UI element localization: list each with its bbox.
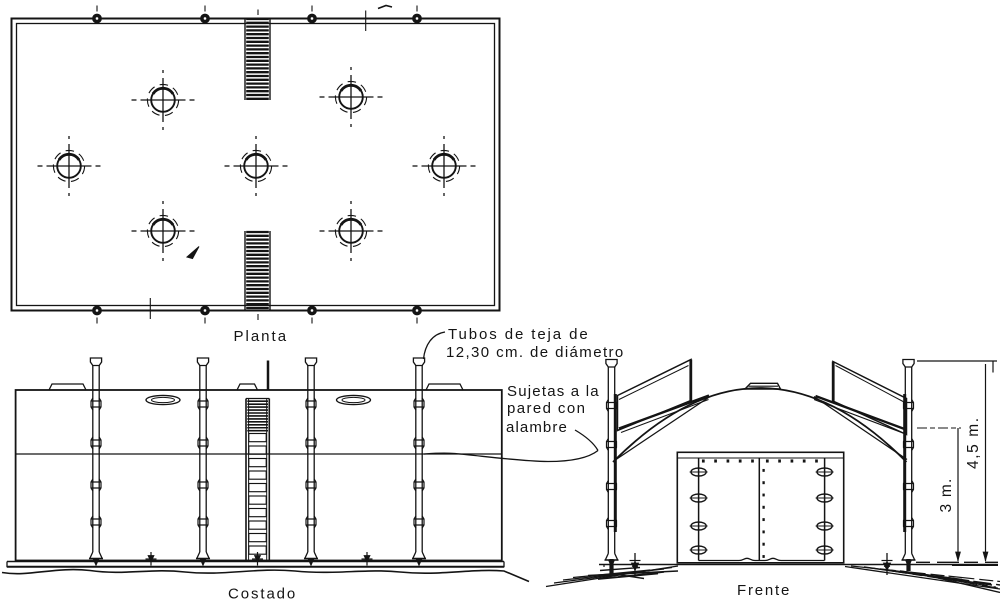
svg-text:pared con: pared con: [507, 400, 586, 417]
svg-text:Tubos de teja de: Tubos de teja de: [448, 326, 590, 343]
svg-text:3 m.: 3 m.: [938, 478, 955, 513]
svg-text:Costado: Costado: [228, 586, 297, 603]
svg-text:Frente: Frente: [737, 582, 791, 599]
svg-text:4,5 m.: 4,5 m.: [965, 416, 982, 469]
svg-text:alambre: alambre: [506, 419, 568, 436]
svg-text:Sujetas a la: Sujetas a la: [507, 383, 600, 400]
svg-text:12,30 cm. de diámetro: 12,30 cm. de diámetro: [446, 344, 625, 361]
svg-text:Planta: Planta: [234, 328, 289, 345]
